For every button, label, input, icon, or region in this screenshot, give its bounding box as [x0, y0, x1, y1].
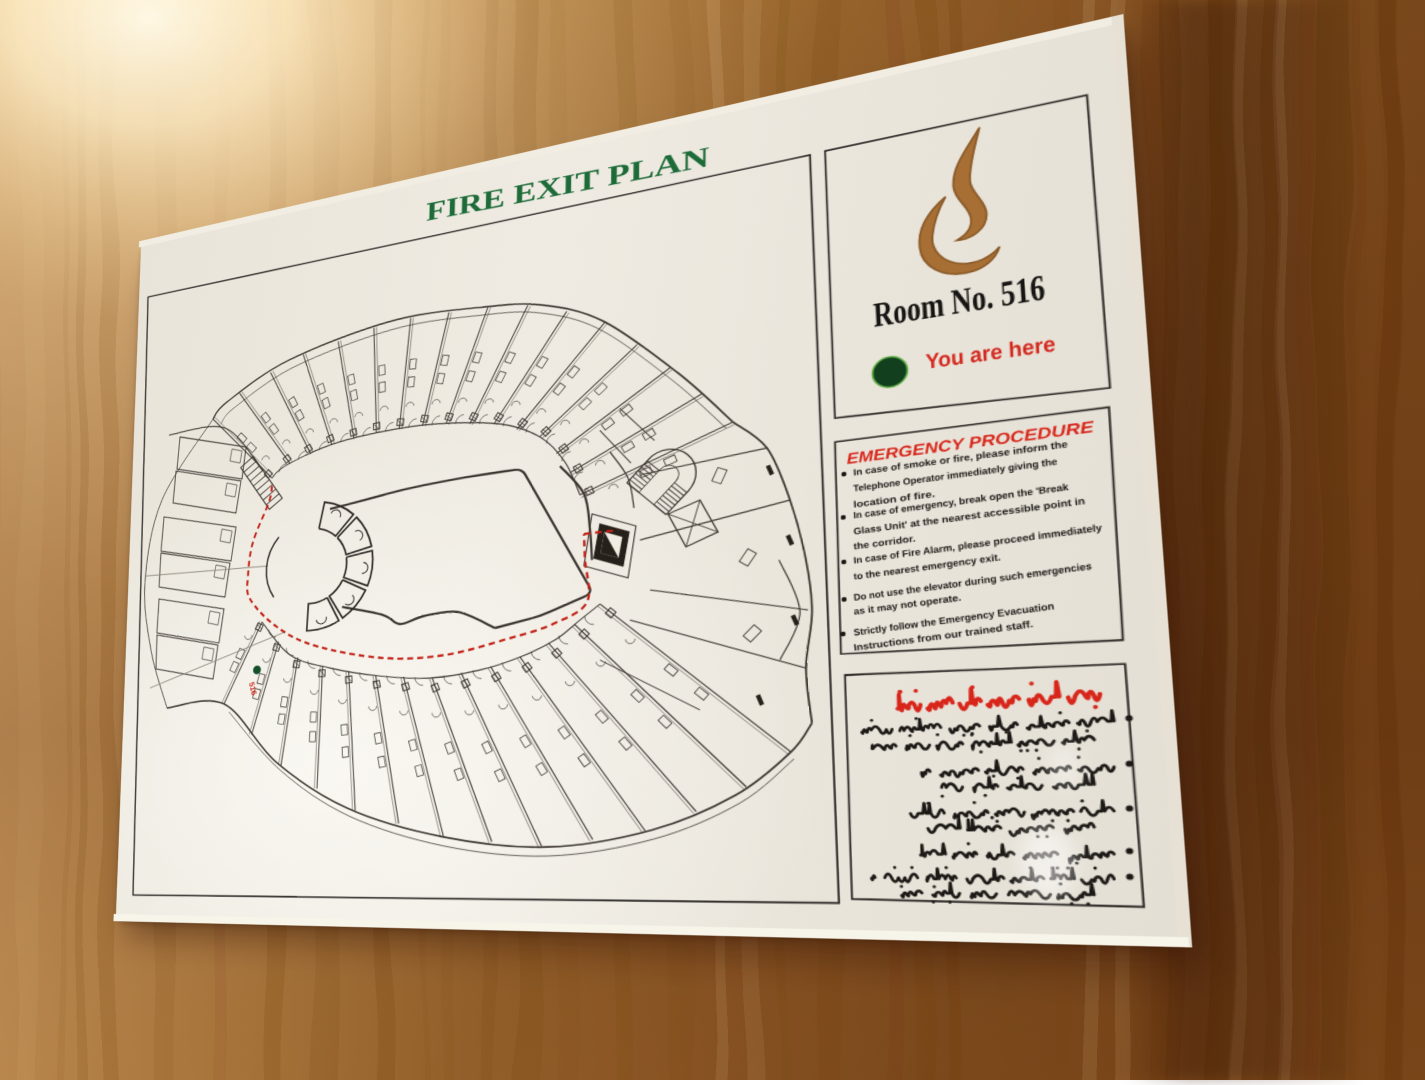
- svg-text:You are here: You are here: [925, 333, 1056, 374]
- svg-text:Room No. 516: Room No. 516: [872, 269, 1046, 336]
- svg-text:516: 516: [247, 681, 258, 697]
